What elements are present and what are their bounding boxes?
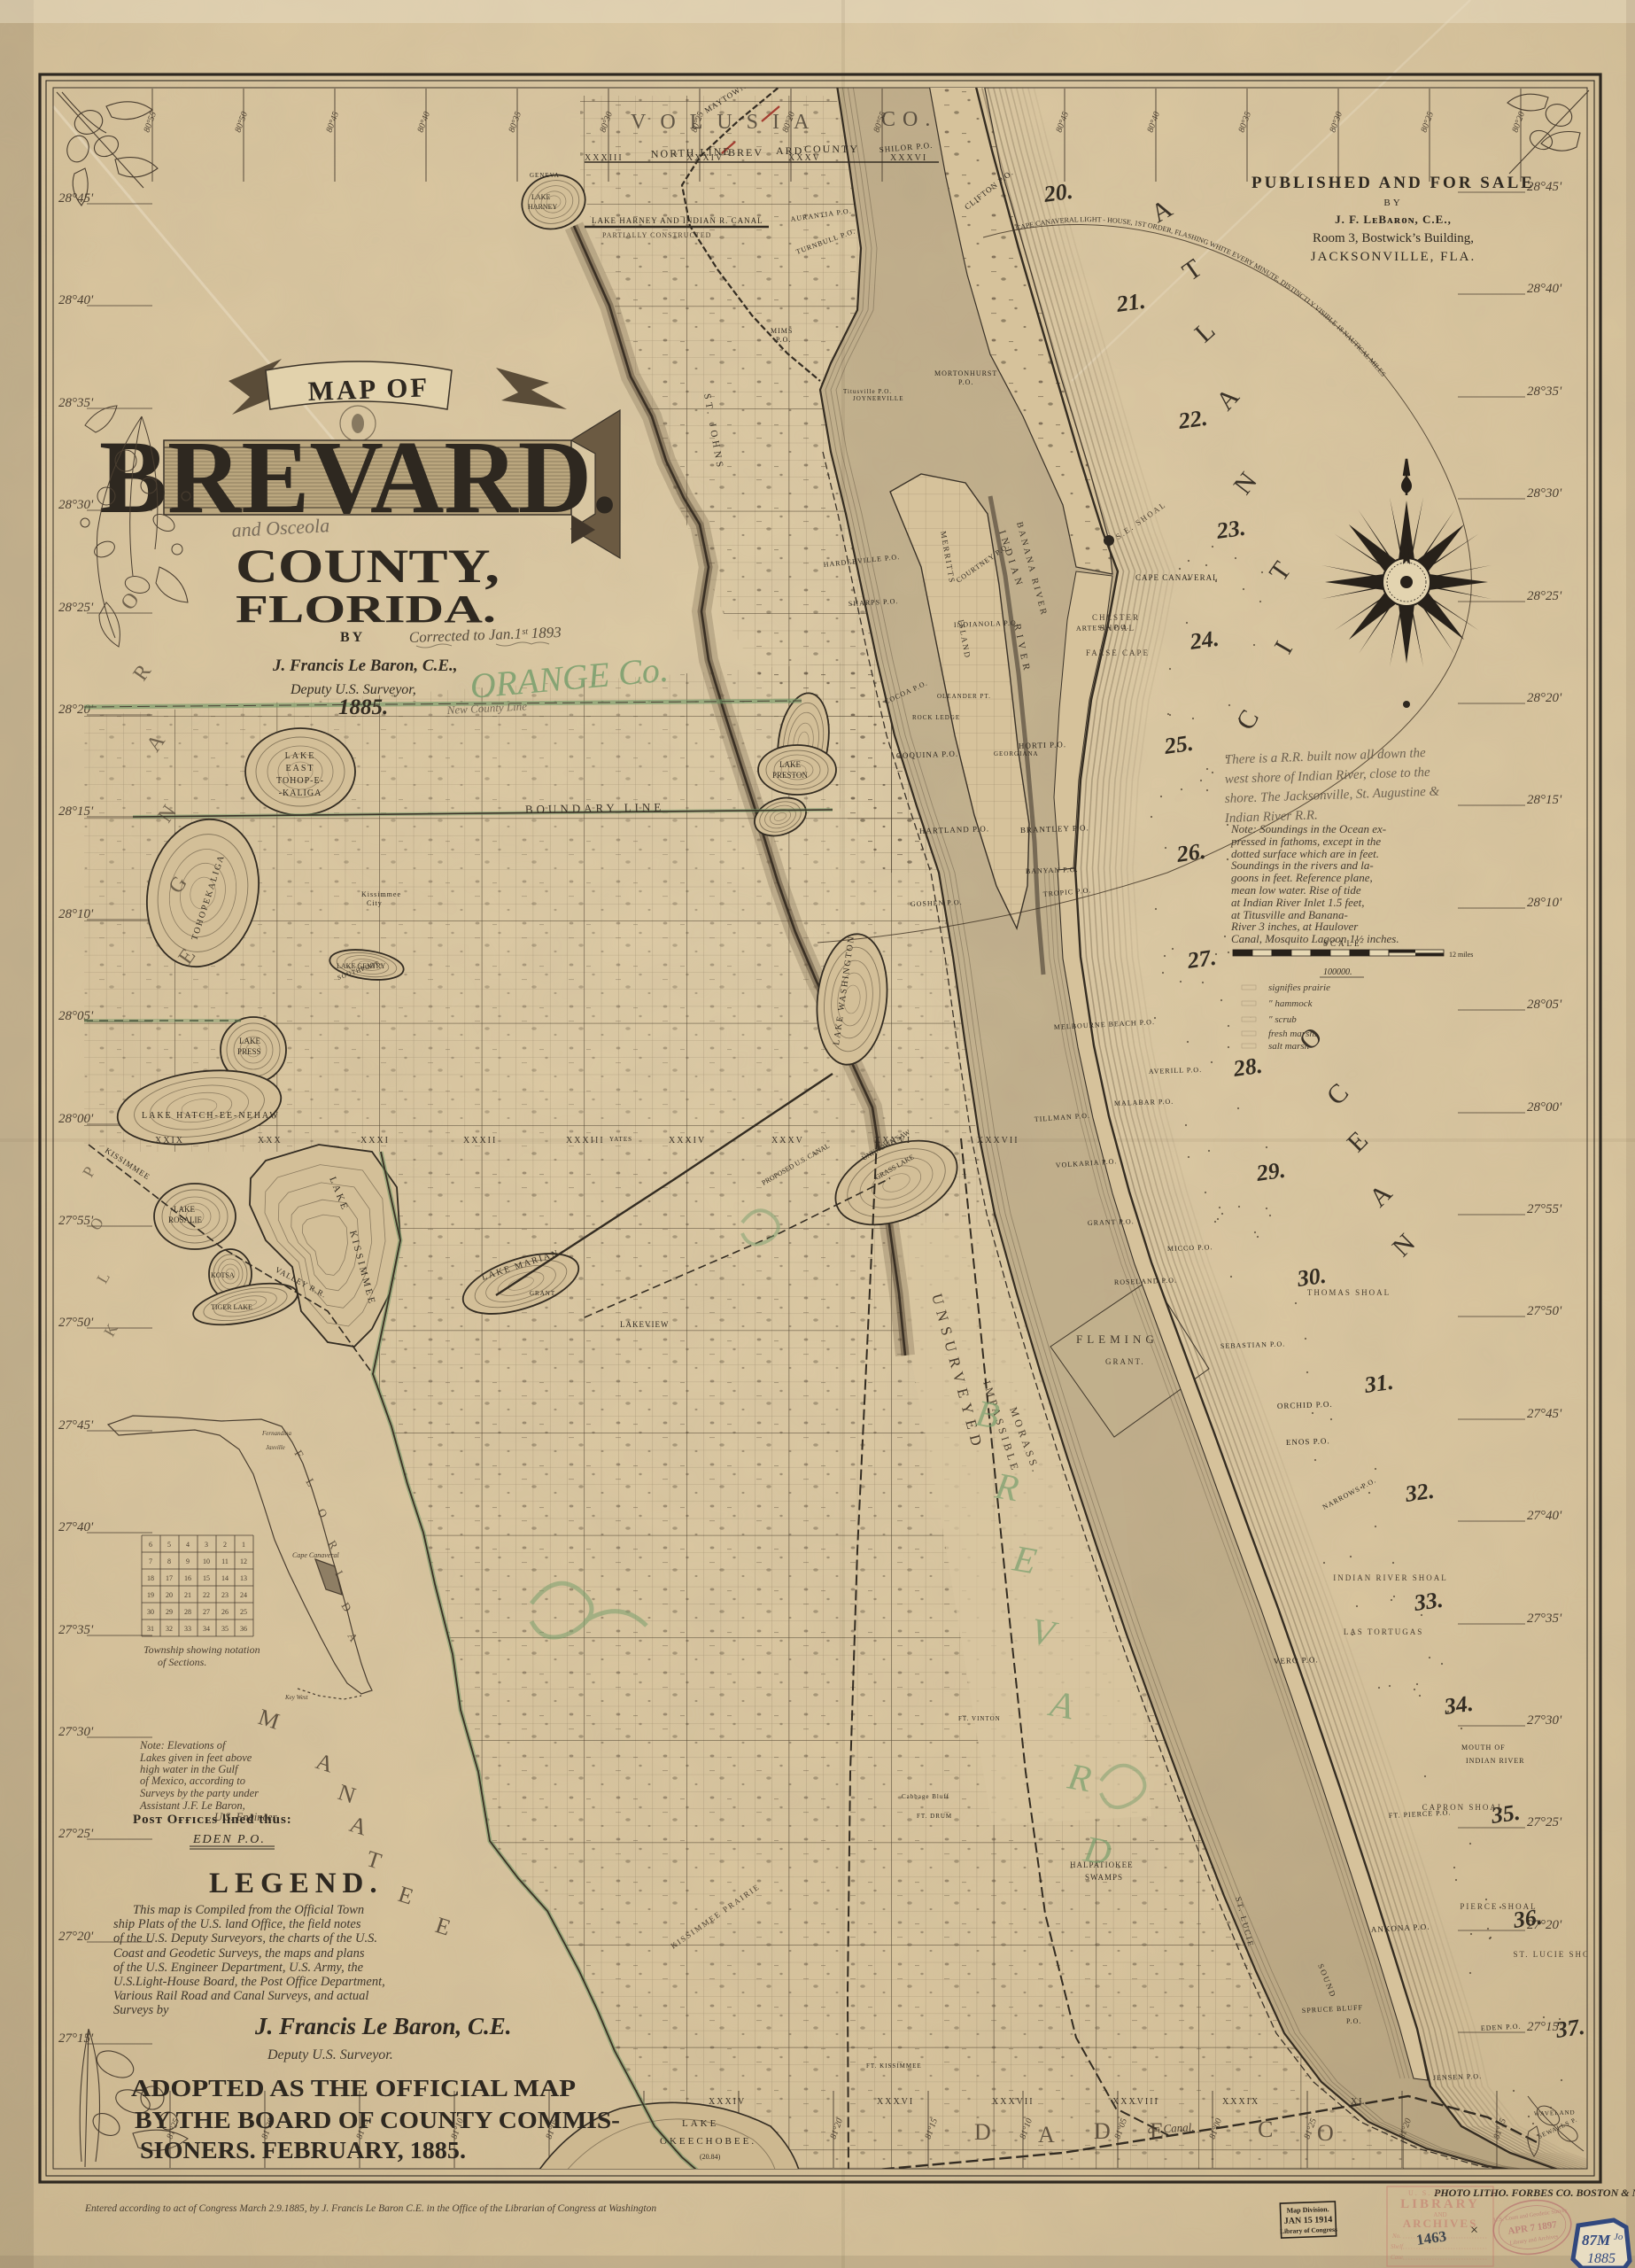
svg-text:LAKE HARNEY AND INDIAN R. CANA: LAKE HARNEY AND INDIAN R. CANAL	[592, 216, 763, 225]
svg-text:2: 2	[223, 1541, 227, 1549]
svg-text:P.O.: P.O.	[1346, 2017, 1361, 2025]
svg-text:XXXII: XXXII	[463, 1136, 497, 1146]
svg-text:D: D	[974, 2119, 991, 2145]
svg-text:MOUTH OF: MOUTH OF	[1461, 1744, 1506, 1751]
svg-text:VOLUSIA: VOLUSIA	[631, 111, 823, 134]
svg-text:23: 23	[221, 1591, 229, 1599]
svg-text:TOHOP-E-: TOHOP-E-	[276, 776, 324, 786]
svg-text:7: 7	[149, 1557, 152, 1565]
svg-text:26.: 26.	[1174, 838, 1207, 867]
svg-text:ENOS P.O.: ENOS P.O.	[1286, 1436, 1330, 1447]
svg-text:of Sections.: of Sections.	[158, 1656, 206, 1668]
svg-text:TIGER LAKE: TIGER LAKE	[211, 1303, 252, 1311]
svg-text:Key West: Key West	[284, 1694, 309, 1701]
svg-text:LAKE: LAKE	[285, 751, 316, 761]
svg-text:28°25': 28°25'	[1527, 589, 1562, 603]
svg-text:LIBRARY: LIBRARY	[1400, 2197, 1480, 2211]
svg-text:9: 9	[186, 1557, 190, 1565]
svg-text:Deputy U.S. Surveyor.: Deputy U.S. Surveyor.	[267, 2047, 393, 2062]
svg-text:XXXIV: XXXIV	[709, 2097, 746, 2107]
svg-text:4: 4	[186, 1541, 190, 1549]
svg-text:mean low water. Rise of tide: mean low water. Rise of tide	[1231, 883, 1361, 897]
svg-text:Entered according to act of Co: Entered according to act of Congress Mar…	[84, 2203, 656, 2214]
svg-text:10: 10	[203, 1557, 210, 1565]
svg-text:goons in feet. Reference plan: goons in feet. Reference plane,	[1231, 871, 1373, 884]
svg-text:HARNEY: HARNEY	[528, 203, 558, 211]
svg-text:INDIAN RIVER: INDIAN RIVER	[1466, 1757, 1524, 1765]
svg-text:31: 31	[147, 1625, 154, 1633]
svg-text:29.: 29.	[1254, 1157, 1287, 1186]
svg-text:25: 25	[240, 1608, 247, 1616]
svg-text:BY: BY	[1383, 198, 1402, 208]
svg-text:XXXV: XXXV	[771, 1136, 804, 1146]
svg-text:3: 3	[205, 1541, 208, 1549]
svg-text:XXXIII: XXXIII	[566, 1136, 605, 1146]
svg-text:XXXI: XXXI	[360, 1136, 390, 1146]
svg-text:PIERCE SHOAL: PIERCE SHOAL	[1460, 1902, 1537, 1911]
svg-text:OKEECHOBEE.: OKEECHOBEE.	[660, 2136, 756, 2147]
svg-text:XXXVI: XXXVI	[874, 1136, 911, 1146]
svg-text:EDEN P.O.: EDEN P.O.	[192, 1833, 266, 1846]
svg-text:27°25': 27°25'	[1527, 1815, 1562, 1829]
svg-text:LAKE: LAKE	[239, 1037, 260, 1045]
svg-text:20: 20	[166, 1591, 173, 1599]
svg-text:LAKE: LAKE	[682, 2118, 718, 2129]
svg-text:6: 6	[149, 1541, 152, 1549]
svg-text:Coast and Geodetic Surveys, th: Coast and Geodetic Surveys, the maps and…	[113, 1946, 365, 1961]
svg-text:of Mexico, according to: of Mexico, according to	[140, 1775, 245, 1787]
svg-text:87M: 87M	[1582, 2232, 1611, 2249]
svg-text:ROCK LEDGE: ROCK LEDGE	[912, 714, 960, 721]
svg-text:37.: 37.	[1554, 2014, 1586, 2043]
svg-text:Lakes given in feet above: Lakes given in feet above	[139, 1751, 252, 1764]
svg-text:33.: 33.	[1412, 1587, 1445, 1616]
svg-text:Note: Elevations of: Note: Elevations of	[139, 1739, 227, 1751]
svg-text:CAPE CANAVERAL: CAPE CANAVERAL	[1135, 573, 1219, 582]
svg-text:28: 28	[184, 1608, 191, 1616]
svg-text:Surveys by: Surveys by	[113, 2003, 169, 2017]
svg-text:29: 29	[166, 1608, 173, 1616]
svg-text:Map Division.: Map Division.	[1286, 2205, 1329, 2215]
svg-text:16: 16	[184, 1574, 191, 1582]
svg-text:No.: No.	[1391, 2233, 1401, 2240]
svg-text:SIONERS. FEBRUARY, 1885.: SIONERS. FEBRUARY, 1885.	[140, 2137, 466, 2163]
svg-text:27°45': 27°45'	[1527, 1407, 1562, 1421]
svg-text:EAST: EAST	[286, 764, 315, 773]
svg-text:1885: 1885	[1587, 2251, 1616, 2266]
svg-text:34.: 34.	[1442, 1690, 1475, 1720]
svg-text:XXXIII: XXXIII	[585, 153, 624, 163]
svg-text:PRESS: PRESS	[237, 1047, 261, 1056]
svg-text:Shelf: Shelf	[1391, 2243, 1404, 2250]
svg-text:24.: 24.	[1188, 625, 1220, 655]
svg-text:27°40': 27°40'	[1527, 1509, 1562, 1523]
svg-text:XXXVIII: XXXVIII	[1112, 2097, 1159, 2107]
svg-text:U.S.Light-House Board, the Pos: U.S.Light-House Board, the Post Office D…	[113, 1975, 385, 1989]
svg-text:PRESTON: PRESTON	[772, 771, 808, 780]
svg-text:A: A	[1038, 2122, 1055, 2148]
svg-text:HORTI P.O.: HORTI P.O.	[1019, 740, 1067, 750]
svg-text:THOMAS SHOAL: THOMAS SHOAL	[1307, 1288, 1391, 1297]
svg-text:OLEANDER PT.: OLEANDER PT.	[937, 693, 991, 700]
svg-text:15: 15	[203, 1574, 210, 1582]
svg-text:This map is Compiled from the: This map is Compiled from the Official T…	[133, 1903, 364, 1917]
svg-text:BY: BY	[340, 630, 365, 645]
svg-text:31.: 31.	[1362, 1369, 1395, 1398]
svg-text:28°20': 28°20'	[1527, 691, 1562, 705]
svg-text:12 miles: 12 miles	[1449, 951, 1473, 959]
svg-text:CHESTER: CHESTER	[1092, 613, 1140, 622]
svg-text:D: D	[1094, 2118, 1111, 2144]
svg-text:27.: 27.	[1185, 944, 1218, 974]
svg-text:BREVARD.: BREVARD.	[99, 419, 617, 535]
svg-text:19: 19	[147, 1591, 154, 1599]
svg-text:fresh marsh.: fresh marsh.	[1268, 1029, 1317, 1039]
svg-text:XXXV: XXXV	[788, 153, 821, 163]
svg-text:MICCO P.O.: MICCO P.O.	[1167, 1243, 1213, 1253]
svg-text:34: 34	[203, 1625, 210, 1633]
svg-text:GENEVA: GENEVA	[530, 172, 560, 179]
svg-text:of the U.S. Deputy Surveyors,: of the U.S. Deputy Surveyors, the charts…	[113, 1931, 377, 1946]
svg-text:LAKEVIEW: LAKEVIEW	[620, 1320, 669, 1329]
svg-text:″ scrub: ″ scrub	[1268, 1014, 1297, 1025]
svg-text:8: 8	[167, 1557, 171, 1565]
svg-text:1885.: 1885.	[338, 695, 388, 719]
svg-text:11: 11	[221, 1557, 229, 1565]
svg-text:LAKE: LAKE	[531, 193, 550, 201]
svg-text:Cape Canaveral: Cape Canaveral	[292, 1551, 339, 1559]
svg-text:24: 24	[240, 1591, 247, 1599]
svg-text:CO.: CO.	[881, 108, 937, 131]
svg-text:28°10': 28°10'	[1527, 896, 1562, 910]
svg-text:YATES: YATES	[609, 1136, 632, 1143]
svg-text:XXXVI: XXXVI	[877, 2097, 914, 2107]
svg-text:18: 18	[147, 1574, 154, 1582]
svg-text:XXX: XXX	[258, 1136, 283, 1146]
svg-text:Fernandina: Fernandina	[261, 1430, 292, 1437]
svg-text:36: 36	[240, 1625, 247, 1633]
svg-text:Titusville P.O.: Titusville P.O.	[843, 388, 892, 395]
svg-text:22.: 22.	[1176, 405, 1209, 434]
svg-text:×: ×	[1470, 2223, 1478, 2238]
svg-text:33: 33	[184, 1625, 191, 1633]
svg-text:GEORGIANA: GEORGIANA	[994, 750, 1039, 757]
svg-text:Surveys by the party under: Surveys by the party under	[140, 1787, 259, 1799]
svg-text:MAP OF: MAP OF	[307, 371, 430, 407]
svg-text:Various Rail Road and Canal Su: Various Rail Road and Canal Surveys, and…	[113, 1989, 368, 2003]
svg-text:BOUNDARY LINE: BOUNDARY LINE	[525, 800, 665, 816]
svg-text:P.O.: P.O.	[958, 378, 973, 386]
svg-text:25.: 25.	[1162, 730, 1195, 759]
svg-text:signifies prairie: signifies prairie	[1268, 983, 1330, 993]
svg-text:GRANT: GRANT	[530, 1290, 555, 1297]
svg-text:22: 22	[203, 1591, 210, 1599]
svg-text:5: 5	[167, 1541, 171, 1549]
svg-text:c≡ Canal.: c≡ Canal.	[1147, 2120, 1195, 2136]
svg-text:28°40': 28°40'	[1527, 282, 1562, 296]
svg-text:salt marsh: salt marsh	[1268, 1041, 1310, 1052]
svg-text:INDIAN RIVER SHOAL: INDIAN RIVER SHOAL	[1333, 1573, 1448, 1582]
svg-text:FT. VINTON: FT. VINTON	[958, 1715, 1001, 1722]
svg-text:30: 30	[147, 1608, 154, 1616]
svg-text:BY THE BOARD OF COUNTY COMMIS-: BY THE BOARD OF COUNTY COMMIS-	[135, 2107, 620, 2133]
svg-text:28°15': 28°15'	[1527, 793, 1562, 807]
svg-text:28°00': 28°00'	[1527, 1100, 1562, 1115]
svg-text:Note: Soundings in the Ocean e: Note: Soundings in the Ocean ex-	[1230, 822, 1386, 835]
svg-text:27°35': 27°35'	[1527, 1612, 1562, 1626]
svg-text:Township showing notation: Township showing notation	[143, 1643, 260, 1656]
svg-text:XXXVII: XXXVII	[992, 2097, 1034, 2107]
svg-text:PARTIALLY CONSTRUCTED: PARTIALLY CONSTRUCTED	[602, 231, 711, 239]
svg-text:JAN 15 1914: JAN 15 1914	[1284, 2215, 1333, 2226]
svg-text:C: C	[1258, 2117, 1273, 2142]
svg-text:P.O.: P.O.	[776, 336, 791, 344]
svg-text:O: O	[1317, 2120, 1334, 2146]
svg-text:JENSEN P.O.: JENSEN P.O.	[1433, 2072, 1483, 2082]
svg-text:14: 14	[221, 1574, 229, 1582]
svg-text:JACKSONVILLE, FLA.: JACKSONVILLE, FLA.	[1311, 250, 1476, 264]
svg-text:ship Plats of the U.S. land Of: ship Plats of the U.S. land Office, the …	[113, 1917, 361, 1931]
svg-text:MORTONHURST: MORTONHURST	[934, 369, 997, 377]
svg-text:LEGEND.: LEGEND.	[209, 1868, 384, 1899]
svg-text:Jaxville: Jaxville	[266, 1444, 285, 1451]
svg-text:28.: 28.	[1231, 1052, 1264, 1082]
svg-text:BREV: BREV	[728, 146, 763, 159]
svg-text:32: 32	[166, 1625, 173, 1633]
svg-text:PUBLISHED AND FOR SALE: PUBLISHED AND FOR SALE	[1251, 174, 1535, 192]
svg-text:J. Frаncіs Le Bаron, C.E.,: J. Frаncіs Le Bаron, C.E.,	[272, 656, 458, 675]
svg-text:Jo: Jo	[1614, 2232, 1623, 2242]
svg-text:U. S. C.: U. S. C.	[1408, 2189, 1445, 2197]
svg-text:FALSE CAPE: FALSE CAPE	[1086, 649, 1150, 657]
svg-text:ADOPTED AS THE OFFICIAL MAP: ADOPTED AS THE OFFICIAL MAP	[131, 2075, 576, 2101]
svg-text:32.: 32.	[1403, 1478, 1436, 1507]
svg-text:COUNTY,: COUNTY,	[236, 540, 500, 593]
svg-text:Pᴏsᴛ Oғғɪᴄᴇs lined thus:: Pᴏsᴛ Oғғɪᴄᴇs lined thus:	[133, 1813, 292, 1827]
svg-text:35: 35	[221, 1625, 229, 1633]
svg-text:FLORIDA.: FLORIDA.	[236, 587, 496, 631]
svg-text:Canal, Mosquito Lagoon 1½ inch: Canal, Mosquito Lagoon 1½ inches.	[1231, 932, 1399, 945]
svg-text:LAKE HATCH-EE-NEHAW: LAKE HATCH-EE-NEHAW	[142, 1111, 280, 1121]
svg-text:Case: Case	[1391, 2254, 1403, 2261]
svg-text:28°35': 28°35'	[1527, 384, 1562, 399]
svg-text:XXXIX: XXXIX	[1222, 2097, 1259, 2107]
svg-text:28°05': 28°05'	[1527, 998, 1562, 1012]
svg-text:at Indian River Inlet 1.5 feet: at Indian River Inlet 1.5 feet,	[1231, 896, 1365, 909]
svg-text:XXIX: XXIX	[155, 1136, 184, 1146]
svg-text:13: 13	[240, 1574, 247, 1582]
svg-text:LAKE: LAKE	[779, 760, 801, 769]
svg-text:VERO P.O.: VERO P.O.	[1274, 1655, 1319, 1666]
svg-text:MIMS: MIMS	[771, 327, 793, 335]
svg-text:FT. KISSIMMEE: FT. KISSIMMEE	[866, 2062, 922, 2070]
svg-text:City: City	[367, 899, 383, 907]
svg-text:Cabbage Bluff: Cabbage Bluff	[902, 1793, 949, 1800]
svg-text:23.: 23.	[1214, 515, 1247, 544]
svg-text:1: 1	[242, 1541, 245, 1549]
svg-text:27°50': 27°50'	[1527, 1304, 1562, 1318]
svg-text:GRANT P.O.: GRANT P.O.	[1088, 1217, 1135, 1227]
svg-text:Room 3, Bostwick’s Building,: Room 3, Bostwick’s Building,	[1313, 231, 1474, 245]
svg-text:(20.84): (20.84)	[700, 2153, 721, 2161]
svg-text:12: 12	[240, 1557, 247, 1565]
svg-text:27°55': 27°55'	[1527, 1202, 1562, 1216]
svg-text:high water in the Gulf: high water in the Gulf	[140, 1763, 239, 1775]
svg-text:21.: 21.	[1114, 288, 1147, 317]
svg-text:XXXIV: XXXIV	[686, 153, 724, 163]
svg-text:27: 27	[203, 1608, 210, 1616]
svg-text:21: 21	[184, 1591, 191, 1599]
svg-text:″ hammock: ″ hammock	[1268, 998, 1313, 1009]
svg-text:Soundings in the rivers and la: Soundings in the rivers and la-	[1231, 858, 1374, 872]
svg-text:27°30': 27°30'	[1527, 1713, 1562, 1728]
svg-text:SCALE: SCALE	[1323, 939, 1362, 948]
svg-text:River 3 inches, at Haulover: River 3 inches, at Haulover	[1230, 920, 1359, 933]
svg-text:LAS TORTUGAS: LAS TORTUGAS	[1344, 1627, 1423, 1636]
svg-text:XXXIV: XXXIV	[669, 1136, 706, 1146]
svg-text:XXXVII: XXXVII	[977, 1136, 1019, 1146]
svg-text:XL: XL	[1351, 2097, 1366, 2107]
svg-text:Kissimmee: Kissimmee	[361, 890, 401, 898]
svg-text:JOYNERVILLE: JOYNERVILLE	[853, 395, 904, 402]
svg-text:28°30': 28°30'	[1527, 486, 1562, 501]
svg-text:J. F. LᴇBᴀʀᴏɴ, C.E.,: J. F. LᴇBᴀʀᴏɴ, C.E.,	[1335, 213, 1452, 226]
svg-text:26: 26	[221, 1608, 229, 1616]
svg-text:20.: 20.	[1042, 178, 1074, 207]
svg-text:of the U.S. Engineer Departmen: of the U.S. Engineer Department, U.S. Ar…	[113, 1961, 364, 1975]
svg-text:100000.: 100000.	[1323, 967, 1352, 977]
svg-text:J. Francis Le Baron, C.E.: J. Francis Le Baron, C.E.	[254, 2013, 512, 2039]
svg-text:XXXVI: XXXVI	[890, 153, 927, 163]
svg-text:pressed in fathoms, except in: pressed in fathoms, except in the	[1230, 835, 1381, 848]
svg-text:-KALIGA: -KALIGA	[279, 788, 322, 798]
svg-text:17: 17	[166, 1574, 173, 1582]
svg-text:KOTSA: KOTSA	[211, 1271, 235, 1279]
svg-text:Assistant J.F. Le Baron,: Assistant J.F. Le Baron,	[139, 1799, 245, 1812]
svg-text:FT. DRUM: FT. DRUM	[917, 1813, 952, 1820]
svg-text:SWAMPS: SWAMPS	[1085, 1873, 1123, 1882]
